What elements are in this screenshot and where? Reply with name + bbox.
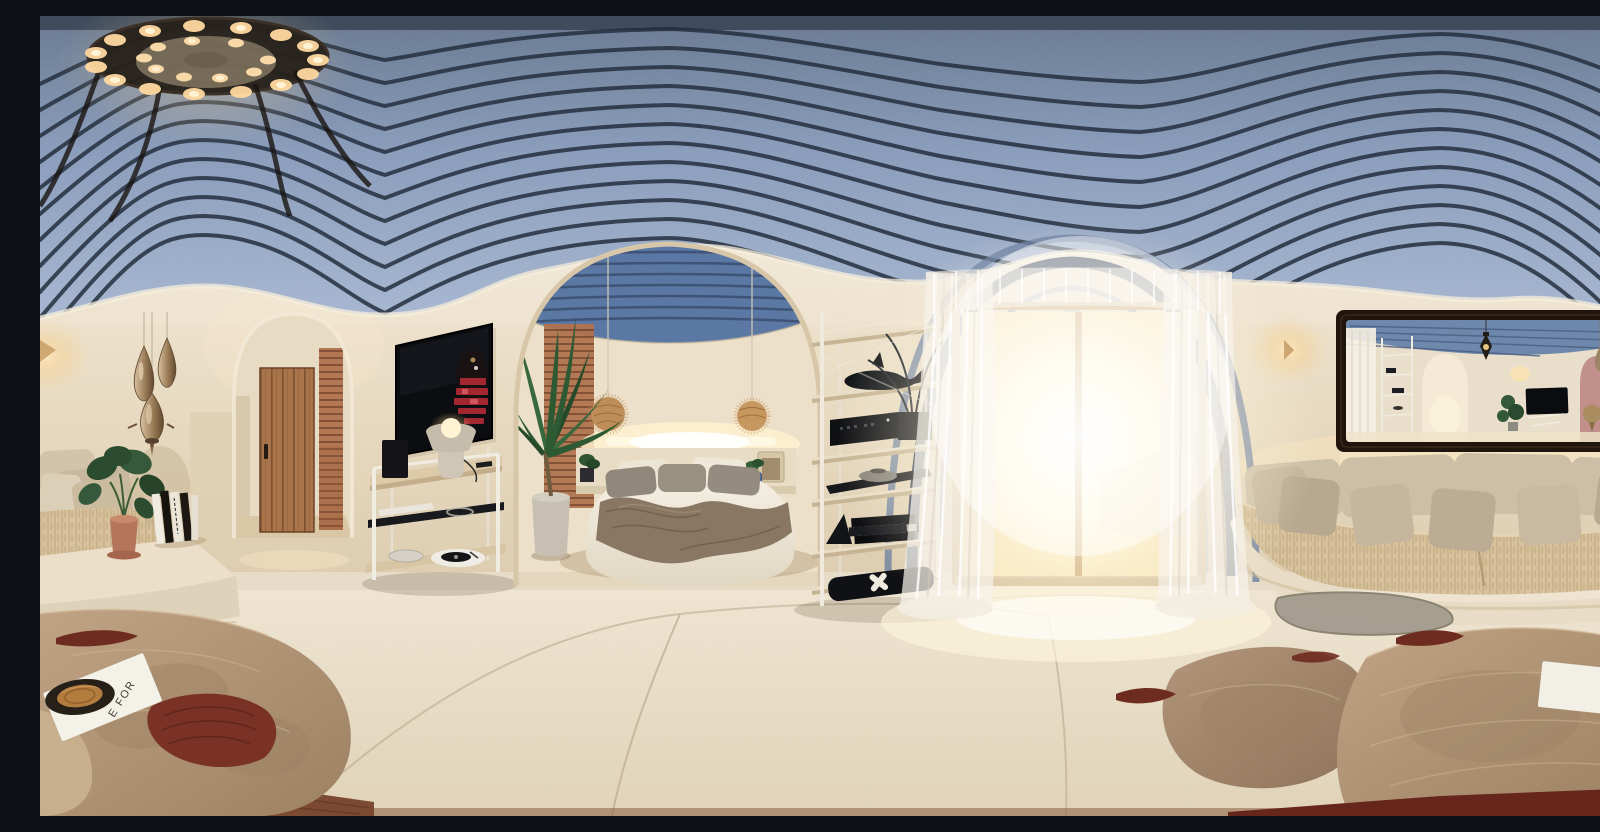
wood-door[interactable] — [260, 368, 314, 532]
panorama-screenshot: E FOR 360-degree e — [40, 16, 1600, 816]
bed-pillow — [707, 464, 761, 496]
bed-pillow — [658, 464, 706, 492]
bed-pillow — [605, 465, 658, 498]
panorama-viewport[interactable]: E FOR — [40, 16, 1600, 816]
plate — [389, 550, 423, 562]
hallway-arch — [234, 314, 352, 538]
mirror-reflection — [1346, 320, 1600, 442]
window-bay — [838, 221, 1318, 662]
speaker — [382, 440, 408, 478]
door-handle[interactable] — [264, 444, 268, 459]
turntable[interactable] — [431, 549, 485, 567]
hall-light-spill — [239, 550, 349, 570]
concrete-pot — [532, 495, 570, 556]
